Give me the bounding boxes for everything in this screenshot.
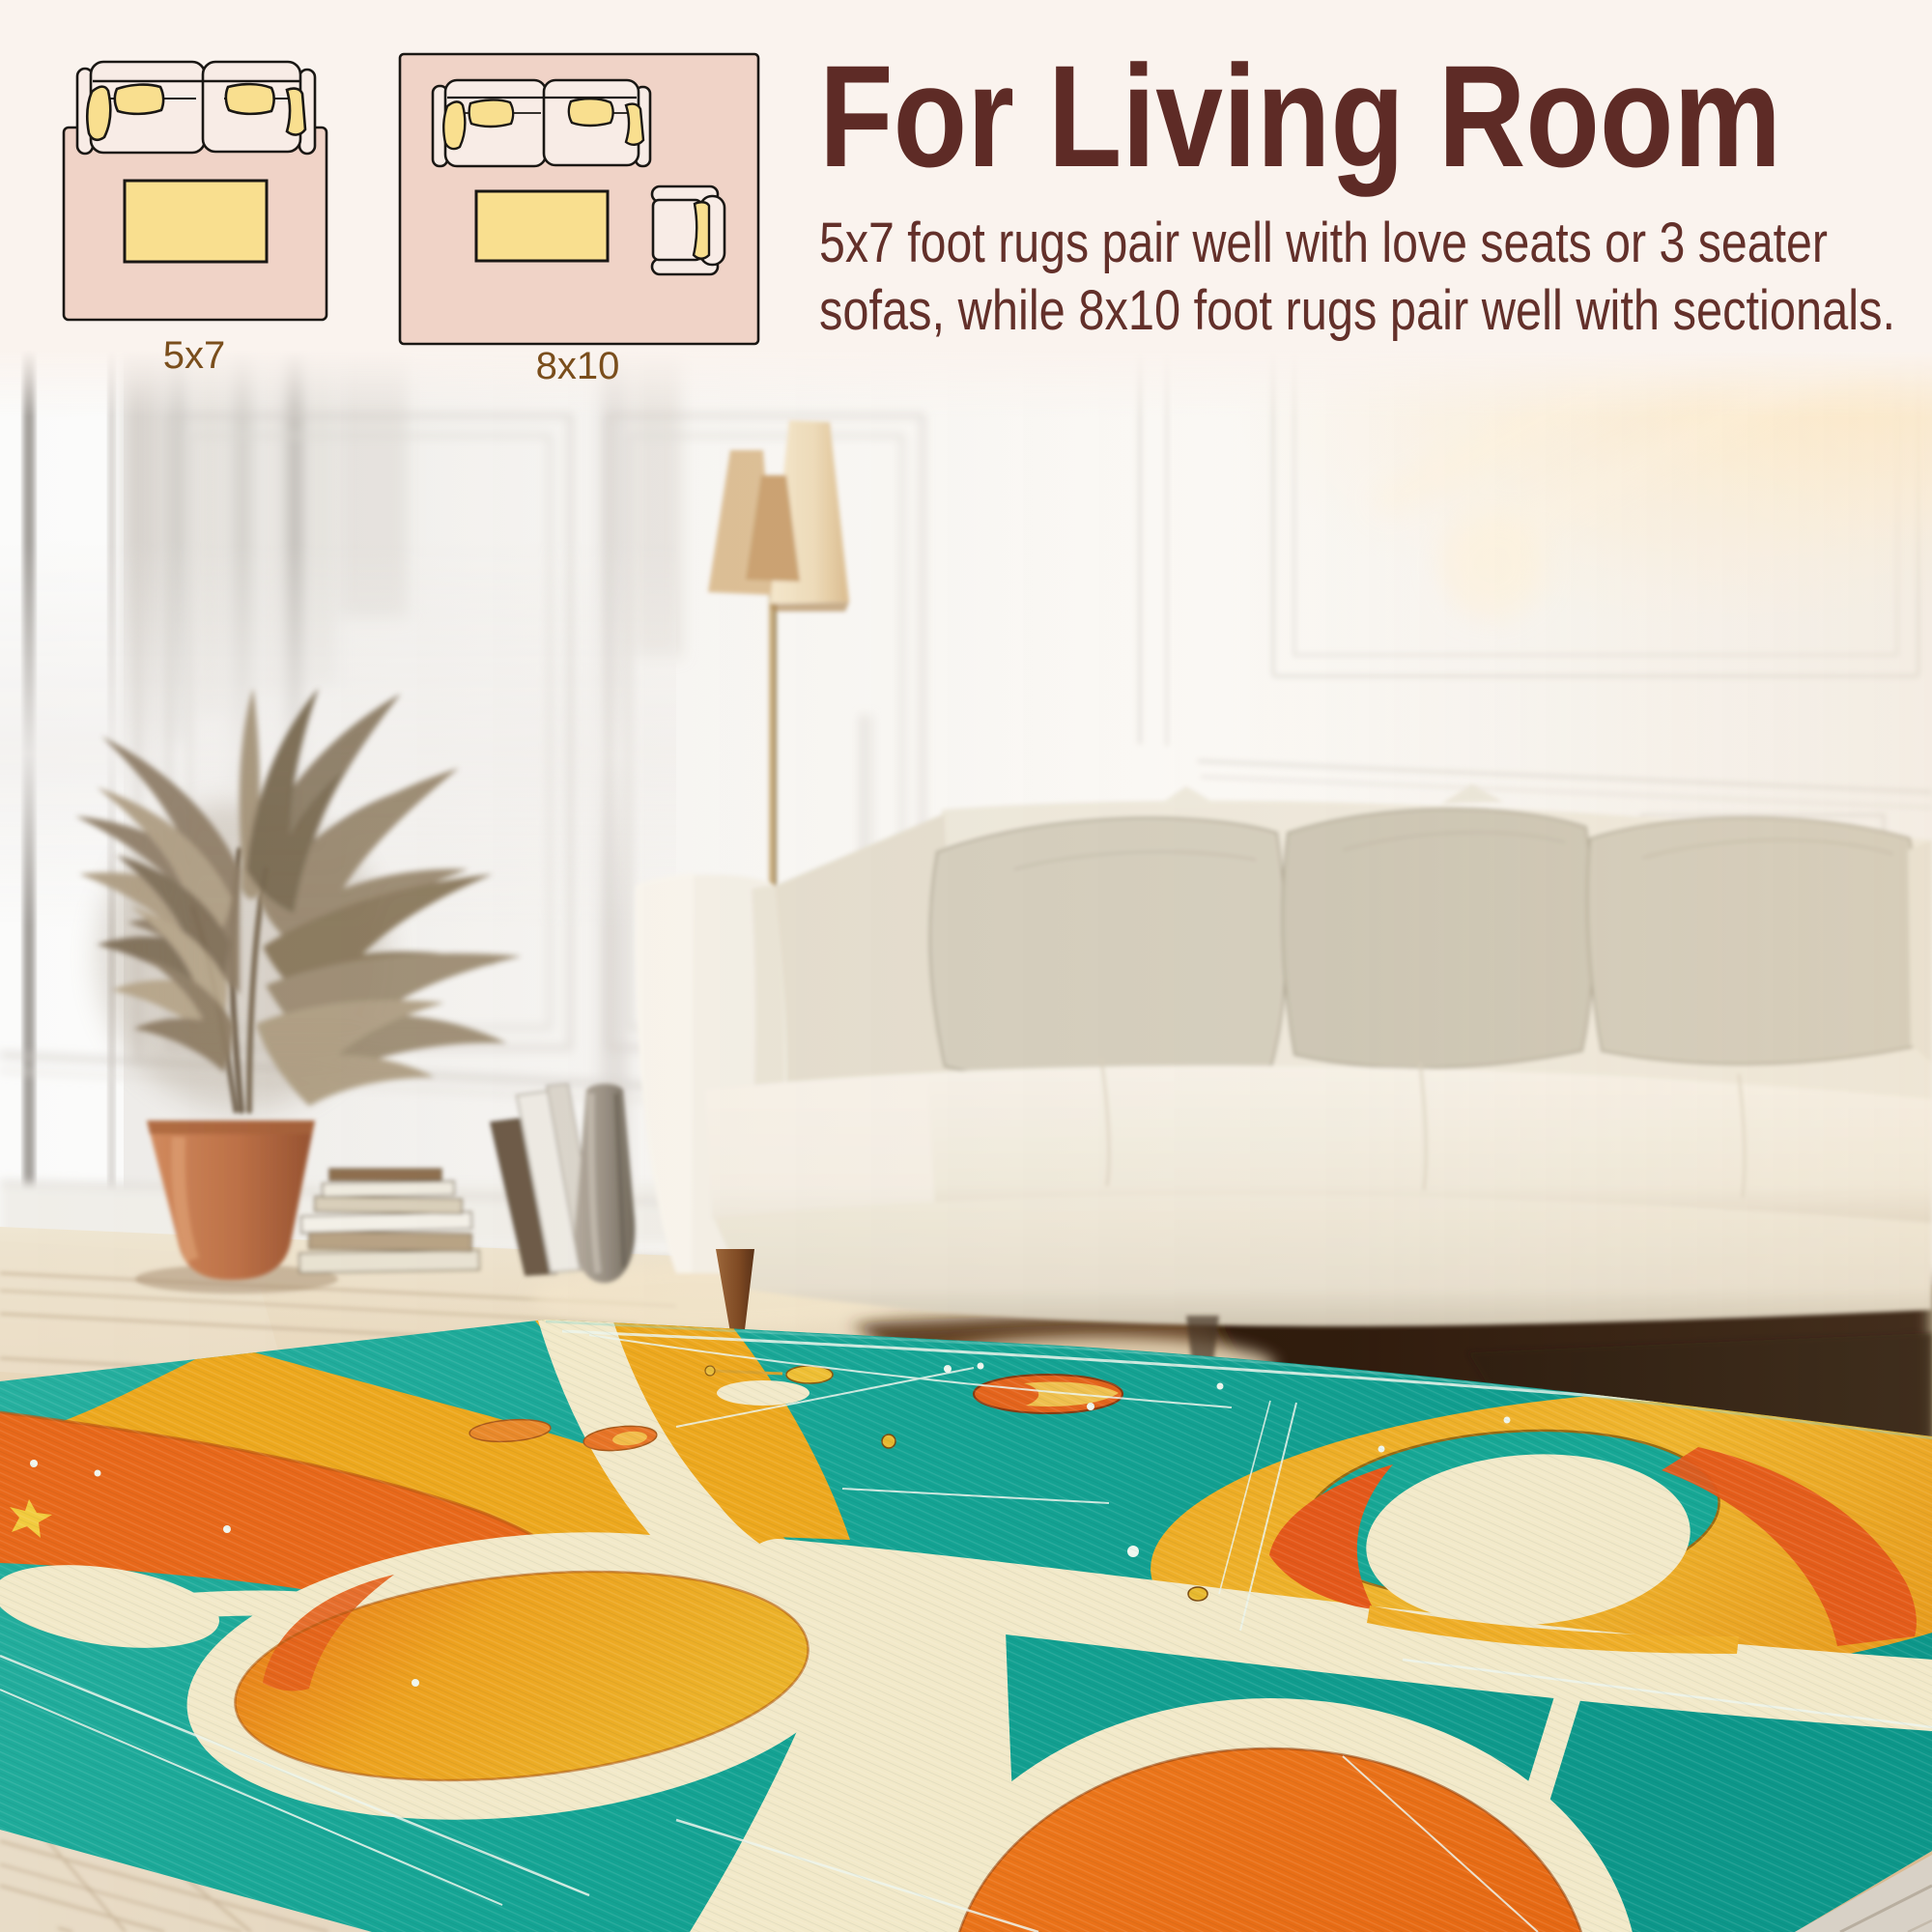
svg-text:For Living Room: For Living Room [819,35,1781,197]
svg-text:5x7 foot rugs pair well with l: 5x7 foot rugs pair well with love seats … [819,212,1828,274]
svg-text:8x10: 8x10 [536,345,620,387]
svg-text:5x7: 5x7 [163,334,226,377]
svg-text:sofas, while 8x10 foot rugs pa: sofas, while 8x10 foot rugs pair well wi… [819,279,1895,342]
